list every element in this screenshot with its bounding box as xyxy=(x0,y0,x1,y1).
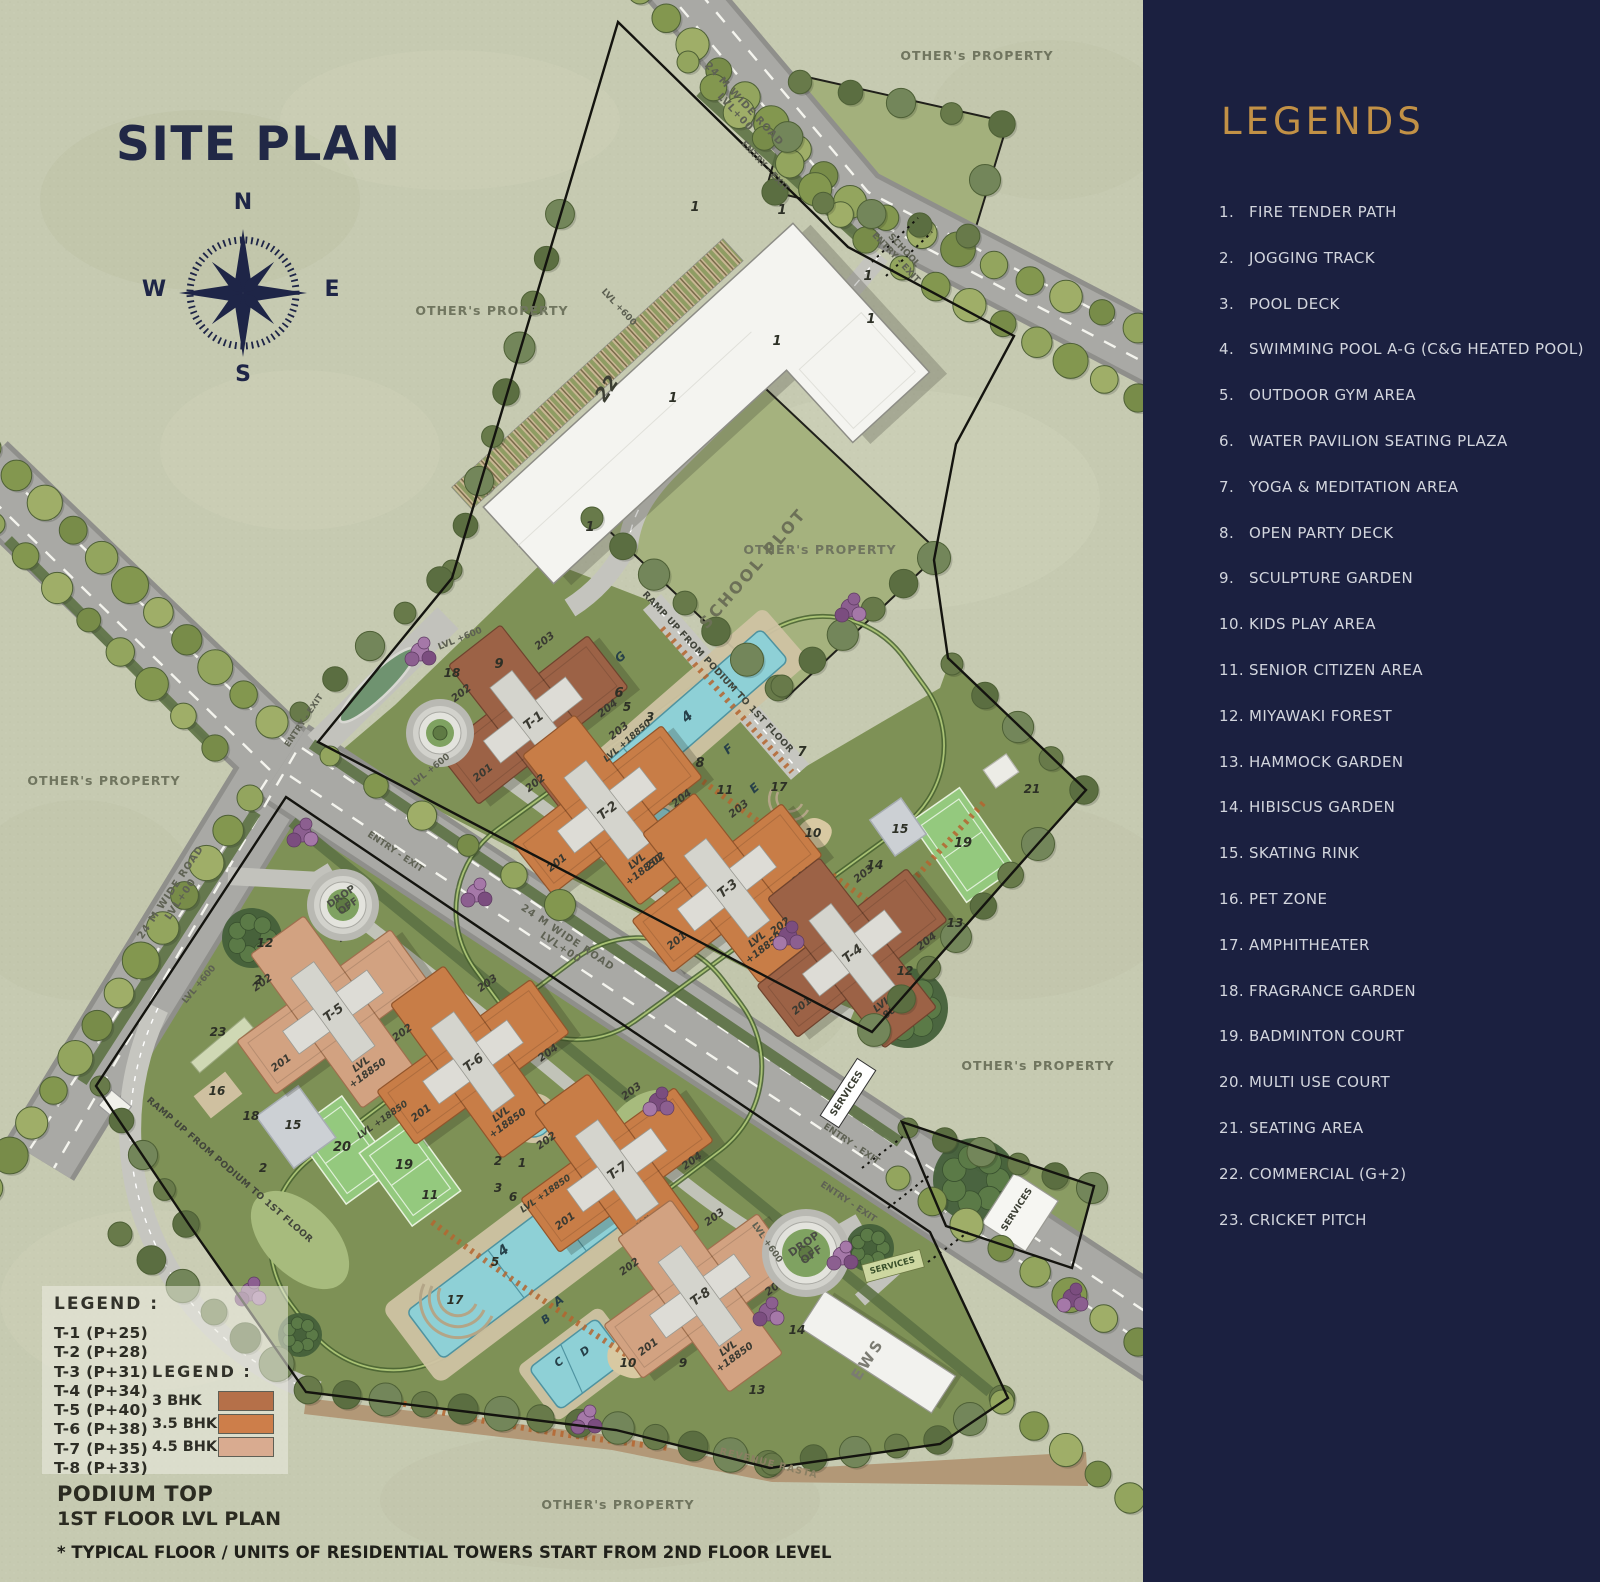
compass-n: N xyxy=(234,190,252,215)
legend-item-label: SEATING AREA xyxy=(1249,1119,1364,1137)
legend-item-label: OUTDOOR GYM AREA xyxy=(1249,386,1416,404)
num-marker: 9 xyxy=(494,657,503,672)
compass-w: W xyxy=(142,277,166,302)
legend-item: 13.HAMMOCK GARDEN xyxy=(1219,753,1584,771)
roundabout-tree xyxy=(433,726,447,740)
compass-e: E xyxy=(324,277,339,302)
flowering-tree xyxy=(405,652,419,666)
num-marker: 12 xyxy=(897,964,914,978)
legend-item-number: 17. xyxy=(1219,936,1249,954)
tree xyxy=(1020,1256,1050,1286)
tree xyxy=(1,460,32,491)
tree xyxy=(544,889,575,920)
tower-legend-item: T-6 (P+38) xyxy=(54,1420,148,1439)
legends-panel: LEGENDS 1.FIRE TENDER PATH2.JOGGING TRAC… xyxy=(1143,0,1600,1582)
tree xyxy=(407,801,436,830)
legend-item: 12.MIYAWAKI FOREST xyxy=(1219,707,1584,725)
tree xyxy=(908,213,932,237)
tower-legend-item: T-7 (P+35) xyxy=(54,1440,148,1459)
legend-item: 18.FRAGRANCE GARDEN xyxy=(1219,982,1584,1000)
bhk-legend: LEGEND : 3 BHK3.5 BHK4.5 BHK xyxy=(152,1362,274,1460)
legend-item-label: FRAGRANCE GARDEN xyxy=(1249,982,1416,1000)
legend-item: 7.YOGA & MEDITATION AREA xyxy=(1219,478,1584,496)
legends-title: LEGENDS xyxy=(1221,100,1425,143)
legend-item-number: 11. xyxy=(1219,661,1249,679)
tree xyxy=(886,88,915,117)
legend-item-label: OPEN PARTY DECK xyxy=(1249,524,1393,542)
tree xyxy=(812,192,834,214)
num-marker: 20 xyxy=(333,1140,351,1155)
tree xyxy=(1020,1412,1049,1441)
bhk-legend-header: LEGEND : xyxy=(152,1362,274,1381)
tree xyxy=(111,566,148,603)
flowering-tree xyxy=(1070,1283,1082,1295)
tree xyxy=(885,1434,909,1458)
num-marker: 11 xyxy=(422,1188,439,1202)
flowering-tree xyxy=(300,818,312,830)
legend-item-number: 18. xyxy=(1219,982,1249,1000)
num-marker: 14 xyxy=(789,1323,806,1337)
tower-legend-item: T-8 (P+33) xyxy=(54,1459,148,1478)
tower-legend-item: T-2 (P+28) xyxy=(54,1343,148,1362)
bhk-label: 3 BHK xyxy=(152,1393,218,1409)
num-marker: 2 xyxy=(259,1161,267,1175)
num-marker: 18 xyxy=(243,1109,260,1123)
flowering-tree xyxy=(1074,1297,1088,1311)
num-marker: 12 xyxy=(257,936,274,950)
tree xyxy=(504,332,535,363)
tree xyxy=(171,703,197,729)
flowering-tree xyxy=(461,893,475,907)
legend-item: 21.SEATING AREA xyxy=(1219,1119,1584,1137)
tower-legend-item: T-4 (P+34) xyxy=(54,1382,148,1401)
legend-item: 6.WATER PAVILION SEATING PLAZA xyxy=(1219,432,1584,450)
num-marker: 23 xyxy=(210,1025,227,1039)
tree xyxy=(969,164,1000,195)
tree xyxy=(237,785,263,811)
legend-item-label: KIDS PLAY AREA xyxy=(1249,615,1376,633)
site-plan-page: T-1201202203204LVL+18850T-2201202203204L… xyxy=(0,0,1600,1582)
legend-item-number: 16. xyxy=(1219,890,1249,908)
num-marker: 15 xyxy=(285,1118,302,1132)
flowering-tree xyxy=(852,607,866,621)
tree xyxy=(137,1246,166,1275)
disclaimer-text: * TYPICAL FLOOR / UNITS OF RESIDENTIAL T… xyxy=(57,1543,832,1562)
num-marker: 11 xyxy=(717,783,734,797)
tree xyxy=(730,643,763,676)
floor-plan-label: 1ST FLOOR LVL PLAN xyxy=(57,1508,281,1530)
legend-item: 2.JOGGING TRACK xyxy=(1219,249,1584,267)
num-marker: 7 xyxy=(797,745,807,760)
flowering-tree xyxy=(418,637,430,649)
num-marker: 1 xyxy=(585,520,594,535)
tree xyxy=(256,706,288,738)
legend-item-label: SENIOR CITIZEN AREA xyxy=(1249,661,1423,679)
legend-item-label: YOGA & MEDITATION AREA xyxy=(1249,478,1458,496)
tree xyxy=(771,675,793,697)
tree xyxy=(42,572,73,603)
num-marker: 1 xyxy=(863,269,872,284)
num-marker: 14 xyxy=(867,858,884,872)
flowering-tree xyxy=(656,1087,668,1099)
site-plan-title: SITE PLAN xyxy=(116,117,401,172)
tree xyxy=(457,834,479,856)
tree xyxy=(172,625,202,655)
tree xyxy=(989,111,1015,137)
tree xyxy=(972,682,999,709)
num-marker: 10 xyxy=(620,1356,637,1370)
tree xyxy=(198,650,233,685)
tree xyxy=(673,591,697,615)
others-property: OTHER's PROPERTY xyxy=(415,303,568,318)
legend-item-number: 21. xyxy=(1219,1119,1249,1137)
num-marker: 5 xyxy=(623,700,631,714)
tree xyxy=(1089,300,1114,325)
bhk-legend-row: 4.5 BHK xyxy=(152,1437,274,1457)
legend-item: 3.POOL DECK xyxy=(1219,295,1584,313)
tree xyxy=(1050,280,1083,313)
num-marker: 18 xyxy=(444,666,461,680)
bhk-legend-row: 3 BHK xyxy=(152,1391,274,1411)
tree xyxy=(27,485,62,520)
others-property: OTHER's PROPERTY xyxy=(27,773,180,788)
legend-item-number: 19. xyxy=(1219,1027,1249,1045)
legend-item-number: 6. xyxy=(1219,432,1249,450)
tree xyxy=(1049,1433,1082,1466)
tree xyxy=(59,516,87,544)
legend-item: 5.OUTDOOR GYM AREA xyxy=(1219,386,1584,404)
flowering-tree xyxy=(753,1312,767,1326)
num-marker: 10 xyxy=(805,826,822,840)
bhk-label: 4.5 BHK xyxy=(152,1439,218,1455)
flowering-tree xyxy=(643,1102,657,1116)
tree xyxy=(652,4,681,33)
legend-item-label: SKATING RINK xyxy=(1249,844,1359,862)
num-marker: 3 xyxy=(646,710,654,724)
flowering-tree xyxy=(790,935,804,949)
legend-item-label: MIYAWAKI FOREST xyxy=(1249,707,1392,725)
num-marker: 19 xyxy=(954,836,972,851)
flowering-tree xyxy=(766,1297,778,1309)
legend-item-number: 7. xyxy=(1219,478,1249,496)
num-marker: 16 xyxy=(209,1084,226,1098)
tree xyxy=(122,942,159,979)
flowering-tree xyxy=(478,892,492,906)
legend-item: 15.SKATING RINK xyxy=(1219,844,1584,862)
forest-tree xyxy=(872,1231,885,1244)
legend-item: 17.AMPHITHEATER xyxy=(1219,936,1584,954)
tree xyxy=(230,681,258,709)
tree xyxy=(106,638,134,666)
tree xyxy=(355,631,384,660)
tower-legend-header: LEGEND : xyxy=(54,1294,159,1314)
legend-item-label: HIBISCUS GARDEN xyxy=(1249,798,1395,816)
tree xyxy=(990,311,1016,337)
tree xyxy=(108,1222,132,1246)
tree xyxy=(941,653,963,675)
tree xyxy=(58,1041,93,1076)
tree xyxy=(980,251,1007,278)
legends-list: 1.FIRE TENDER PATH2.JOGGING TRACK3.POOL … xyxy=(1219,203,1584,1256)
flowering-tree xyxy=(422,651,436,665)
legend-item: 16.PET ZONE xyxy=(1219,890,1584,908)
num-marker: 13 xyxy=(947,916,964,930)
legend-item-label: BADMINTON COURT xyxy=(1249,1027,1404,1045)
tree xyxy=(788,70,811,93)
tree xyxy=(921,272,950,301)
tree xyxy=(85,541,117,573)
tree xyxy=(12,543,39,570)
tree xyxy=(941,103,963,125)
tower-legend-item: T-5 (P+40) xyxy=(54,1401,148,1420)
legend-item-label: PET ZONE xyxy=(1249,890,1327,908)
tree xyxy=(827,619,858,650)
legend-item-number: 2. xyxy=(1219,249,1249,267)
others-property: OTHER's PROPERTY xyxy=(900,48,1053,63)
legend-item-label: JOGGING TRACK xyxy=(1249,249,1375,267)
legend-item-label: POOL DECK xyxy=(1249,295,1340,313)
tree xyxy=(956,224,980,248)
forest-tree xyxy=(254,917,271,934)
tree xyxy=(1090,366,1118,394)
flowering-tree xyxy=(1057,1298,1071,1312)
legend-item-number: 3. xyxy=(1219,295,1249,313)
tree xyxy=(677,51,699,73)
tower-legend-box: LEGEND : T-1 (P+25)T-2 (P+28)T-3 (P+31)T… xyxy=(42,1286,288,1474)
flowering-tree xyxy=(770,1311,784,1325)
tree xyxy=(394,602,416,624)
flowering-tree xyxy=(844,1255,858,1269)
tree xyxy=(16,1107,48,1139)
bhk-label: 3.5 BHK xyxy=(152,1416,218,1432)
legend-item: 1.FIRE TENDER PATH xyxy=(1219,203,1584,221)
flowering-tree xyxy=(287,833,301,847)
num-marker: 1 xyxy=(777,203,786,218)
legend-item-number: 4. xyxy=(1219,340,1249,358)
legend-item: 20.MULTI USE COURT xyxy=(1219,1073,1584,1091)
flowering-tree xyxy=(848,593,860,605)
legend-item: 19.BADMINTON COURT xyxy=(1219,1027,1584,1045)
tree xyxy=(889,569,917,597)
flowering-tree xyxy=(827,1256,841,1270)
podium-top-label: PODIUM TOP xyxy=(57,1482,213,1506)
bhk-swatch xyxy=(218,1437,274,1457)
tree xyxy=(857,200,886,229)
num-marker: 6 xyxy=(614,686,623,701)
others-property: OTHER's PROPERTY xyxy=(961,1058,1114,1073)
legend-item-number: 15. xyxy=(1219,844,1249,862)
tree xyxy=(839,1436,870,1467)
tower-legend-list: T-1 (P+25)T-2 (P+28)T-3 (P+31)T-4 (P+34)… xyxy=(54,1324,148,1478)
legend-item: 14.HIBISCUS GARDEN xyxy=(1219,798,1584,816)
legend-item-number: 23. xyxy=(1219,1211,1249,1229)
tree xyxy=(610,533,637,560)
legend-item-label: HAMMOCK GARDEN xyxy=(1249,753,1403,771)
tree xyxy=(838,80,863,105)
tree xyxy=(213,815,244,846)
legend-item-number: 10. xyxy=(1219,615,1249,633)
legend-item-label: FIRE TENDER PATH xyxy=(1249,203,1397,221)
legend-item-number: 12. xyxy=(1219,707,1249,725)
legend-item-number: 22. xyxy=(1219,1165,1249,1183)
tree xyxy=(501,862,527,888)
num-marker: 1 xyxy=(518,1156,526,1170)
tree xyxy=(202,735,228,761)
num-marker: 5 xyxy=(491,1255,499,1269)
num-marker: 9 xyxy=(679,1356,687,1370)
bhk-swatch xyxy=(218,1391,274,1411)
tree xyxy=(77,608,101,632)
num-marker: 17 xyxy=(771,780,788,794)
legend-item-label: WATER PAVILION SEATING PLAZA xyxy=(1249,432,1508,450)
flowering-tree xyxy=(474,878,486,890)
legend-item-number: 5. xyxy=(1219,386,1249,404)
num-marker: 2 xyxy=(494,1154,502,1168)
tree xyxy=(886,1166,910,1190)
tree xyxy=(135,667,168,700)
legend-item-number: 14. xyxy=(1219,798,1249,816)
legend-item-label: SWIMMING POOL A-G (C&G HEATED POOL) xyxy=(1249,340,1584,358)
legend-item-number: 13. xyxy=(1219,753,1249,771)
flowering-tree xyxy=(660,1101,674,1115)
legend-item-label: AMPHITHEATER xyxy=(1249,936,1370,954)
num-marker: 2 xyxy=(254,973,262,987)
num-marker: 1 xyxy=(690,200,699,215)
legend-item: 4.SWIMMING POOL A-G (C&G HEATED POOL) xyxy=(1219,340,1584,358)
tree xyxy=(1090,1305,1118,1333)
tree xyxy=(144,598,174,628)
num-marker: 1 xyxy=(866,312,875,327)
tree xyxy=(1016,267,1044,295)
legend-item: 8.OPEN PARTY DECK xyxy=(1219,524,1584,542)
num-marker: 17 xyxy=(447,1293,464,1307)
flowering-tree xyxy=(835,608,849,622)
tree xyxy=(799,647,826,674)
bhk-legend-row: 3.5 BHK xyxy=(152,1414,274,1434)
legend-item: 22.COMMERCIAL (G+2) xyxy=(1219,1165,1584,1183)
flowering-tree xyxy=(584,1405,596,1417)
tower-legend-item: T-1 (P+25) xyxy=(54,1324,148,1343)
others-property: OTHER's PROPERTY xyxy=(541,1497,694,1512)
num-marker: 15 xyxy=(892,822,909,836)
legend-item-label: CRICKET PITCH xyxy=(1249,1211,1367,1229)
flowering-tree xyxy=(304,832,318,846)
flowering-tree xyxy=(840,1241,852,1253)
num-marker: 1 xyxy=(668,391,677,406)
bhk-swatch xyxy=(218,1414,274,1434)
num-marker: 3 xyxy=(494,1181,502,1195)
legend-item-number: 1. xyxy=(1219,203,1249,221)
num-marker: 13 xyxy=(749,1383,766,1397)
num-marker: 1 xyxy=(772,334,781,349)
legend-item-label: COMMERCIAL (G+2) xyxy=(1249,1165,1406,1183)
tree xyxy=(1115,1483,1145,1513)
legend-item-number: 8. xyxy=(1219,524,1249,542)
tree xyxy=(323,667,348,692)
num-marker: 19 xyxy=(395,1158,413,1173)
tree xyxy=(1022,327,1052,357)
tree xyxy=(638,559,669,590)
legend-item-number: 9. xyxy=(1219,569,1249,587)
compass-s: S xyxy=(235,362,251,387)
legend-item: 9.SCULPTURE GARDEN xyxy=(1219,569,1584,587)
tree xyxy=(1085,1461,1111,1487)
forest-tree xyxy=(302,1319,314,1331)
flowering-tree xyxy=(773,936,787,950)
num-marker: 21 xyxy=(1024,782,1041,796)
tree xyxy=(1076,1172,1107,1203)
legend-item: 11.SENIOR CITIZEN AREA xyxy=(1219,661,1584,679)
legend-item: 23.CRICKET PITCH xyxy=(1219,1211,1584,1229)
tree xyxy=(82,1010,112,1040)
legend-item-label: SCULPTURE GARDEN xyxy=(1249,569,1413,587)
tree xyxy=(104,978,134,1008)
legend-item-number: 20. xyxy=(1219,1073,1249,1091)
tree xyxy=(1053,343,1088,378)
flowering-tree xyxy=(786,921,798,933)
num-marker: 8 xyxy=(695,756,704,771)
tree xyxy=(40,1077,68,1105)
tower-legend-item: T-3 (P+31) xyxy=(54,1363,148,1382)
legend-item: 10.KIDS PLAY AREA xyxy=(1219,615,1584,633)
legend-item-label: MULTI USE COURT xyxy=(1249,1073,1390,1091)
num-marker: 6 xyxy=(509,1190,517,1204)
